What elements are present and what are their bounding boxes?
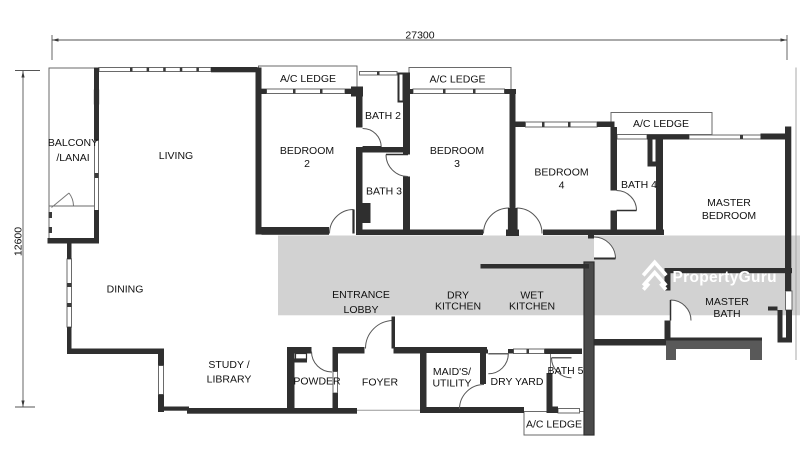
svg-text:MASTER: MASTER (707, 197, 751, 209)
svg-text:BATH 4: BATH 4 (621, 179, 657, 191)
svg-text:FOYER: FOYER (362, 377, 399, 389)
svg-text:DRY: DRY (447, 289, 469, 301)
svg-text:STUDY /: STUDY / (208, 359, 249, 371)
svg-text:UTILITY: UTILITY (432, 378, 471, 390)
svg-text:BEDROOM: BEDROOM (534, 167, 588, 179)
svg-text:DINING: DINING (107, 284, 144, 296)
svg-text:BATH 5: BATH 5 (548, 365, 584, 377)
svg-text:2: 2 (304, 158, 310, 170)
svg-text:A/C LEDGE: A/C LEDGE (429, 74, 485, 86)
svg-text:4: 4 (559, 180, 565, 192)
svg-text:WET: WET (520, 289, 544, 301)
svg-text:LIVING: LIVING (159, 150, 193, 162)
svg-text:KITCHEN: KITCHEN (435, 301, 481, 313)
svg-text:BATH 2: BATH 2 (365, 110, 401, 122)
svg-text:POWDER: POWDER (293, 376, 341, 388)
svg-text:LOBBY: LOBBY (343, 304, 378, 316)
svg-text:A/C LEDGE: A/C LEDGE (526, 419, 582, 431)
svg-text:BEDROOM: BEDROOM (430, 145, 484, 157)
svg-text:A/C LEDGE: A/C LEDGE (633, 118, 689, 130)
svg-text:A/C LEDGE: A/C LEDGE (280, 73, 336, 85)
svg-text:PropertyGuru: PropertyGuru (673, 269, 777, 286)
svg-text:BATH 3: BATH 3 (366, 186, 402, 198)
svg-text:BEDROOM: BEDROOM (702, 210, 756, 222)
svg-text:27300: 27300 (405, 29, 434, 41)
svg-text:DRY YARD: DRY YARD (491, 376, 544, 388)
svg-text:BALCONY: BALCONY (48, 137, 98, 149)
svg-text:KITCHEN: KITCHEN (509, 301, 555, 313)
svg-text:12600: 12600 (13, 227, 25, 256)
svg-text:MASTER: MASTER (705, 296, 749, 308)
svg-text:BATH: BATH (713, 308, 740, 320)
svg-text:/LANAI: /LANAI (56, 152, 89, 164)
svg-text:LIBRARY: LIBRARY (207, 374, 252, 386)
svg-text:MAID'S/: MAID'S/ (433, 366, 471, 378)
svg-text:BEDROOM: BEDROOM (280, 145, 334, 157)
svg-text:3: 3 (454, 158, 460, 170)
svg-text:ENTRANCE: ENTRANCE (332, 289, 390, 301)
